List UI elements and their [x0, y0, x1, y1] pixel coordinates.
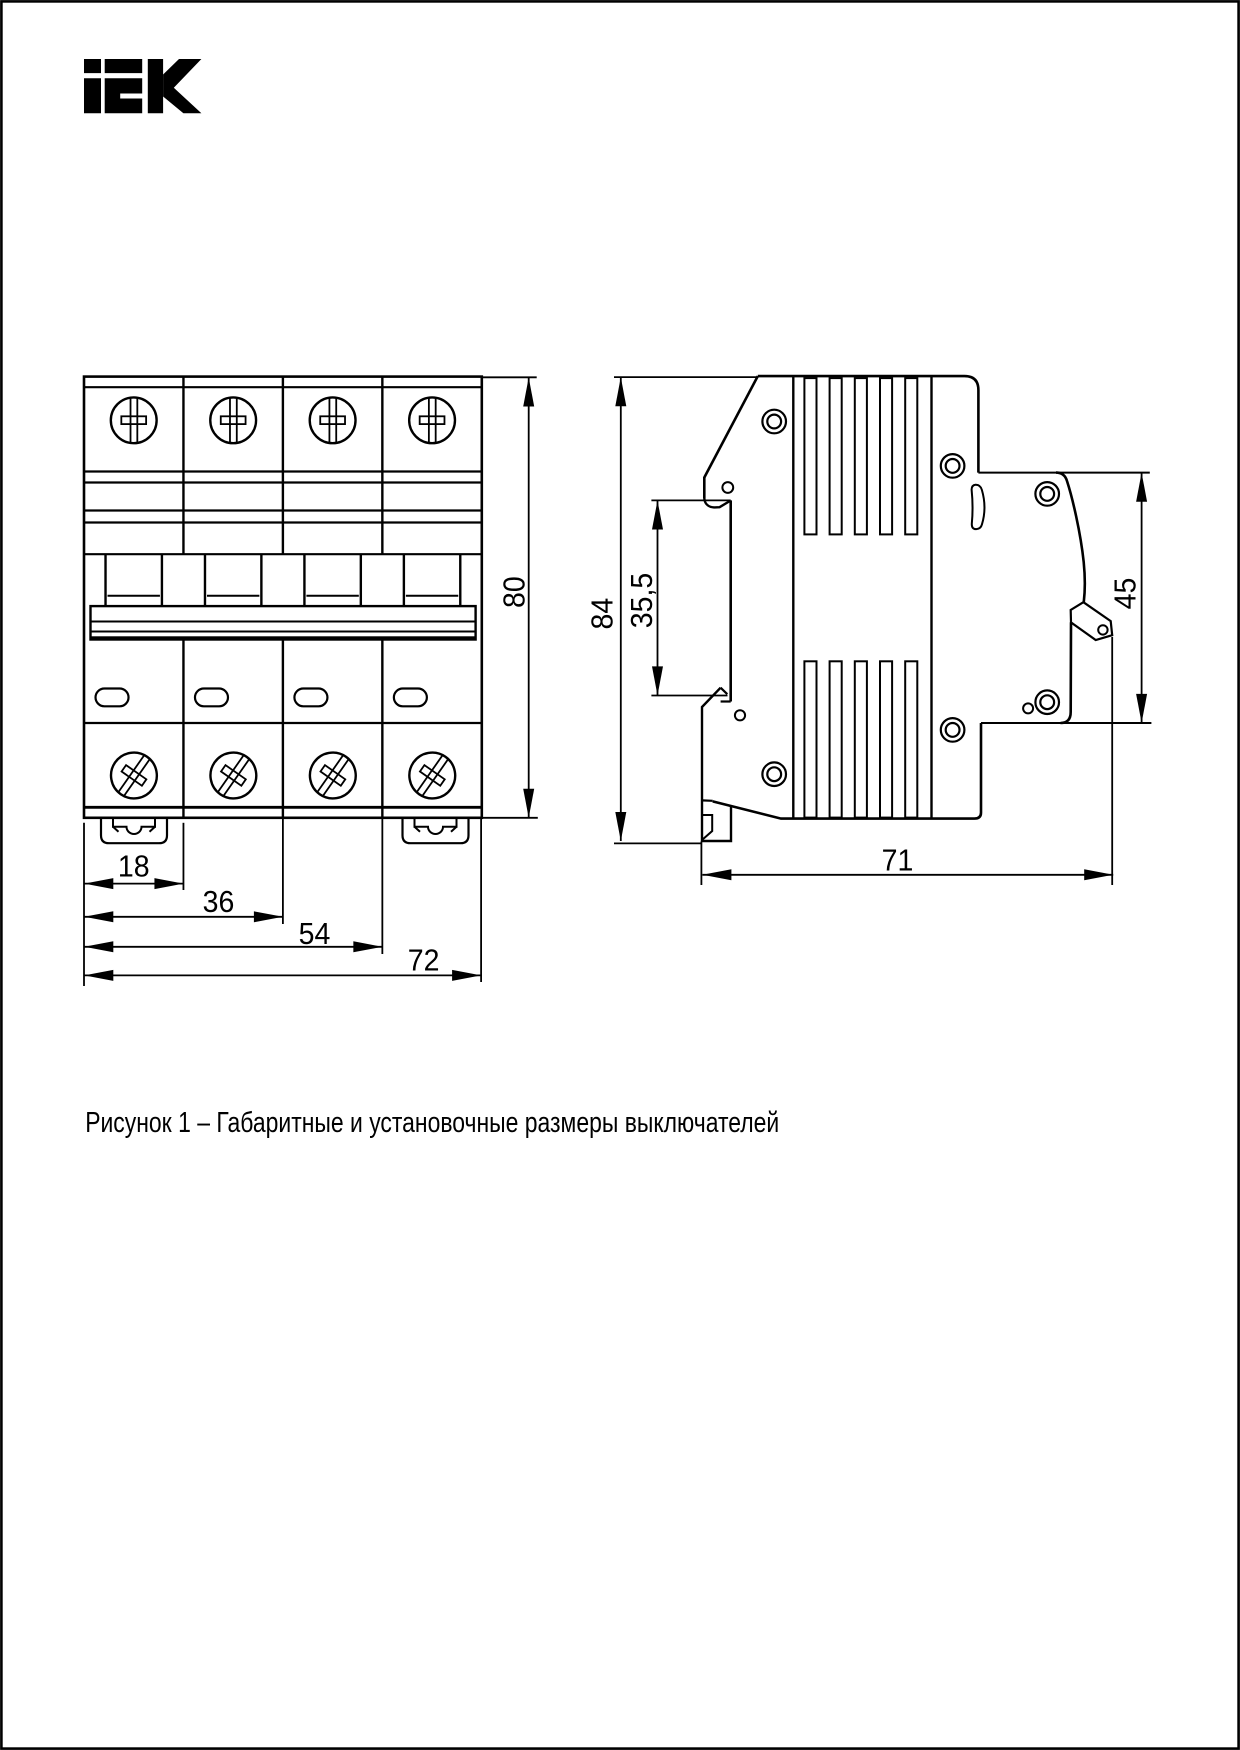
svg-text:36: 36 — [203, 884, 235, 919]
svg-text:Рисунок 1 – Габаритные и устан: Рисунок 1 – Габаритные и установочные ра… — [85, 1107, 779, 1139]
svg-text:84: 84 — [585, 598, 620, 630]
svg-text:45: 45 — [1107, 578, 1142, 610]
svg-text:71: 71 — [882, 843, 914, 878]
svg-text:54: 54 — [299, 916, 331, 951]
svg-text:35,5: 35,5 — [624, 573, 659, 629]
svg-text:72: 72 — [408, 943, 440, 978]
svg-text:18: 18 — [118, 848, 150, 883]
svg-text:80: 80 — [496, 576, 531, 608]
